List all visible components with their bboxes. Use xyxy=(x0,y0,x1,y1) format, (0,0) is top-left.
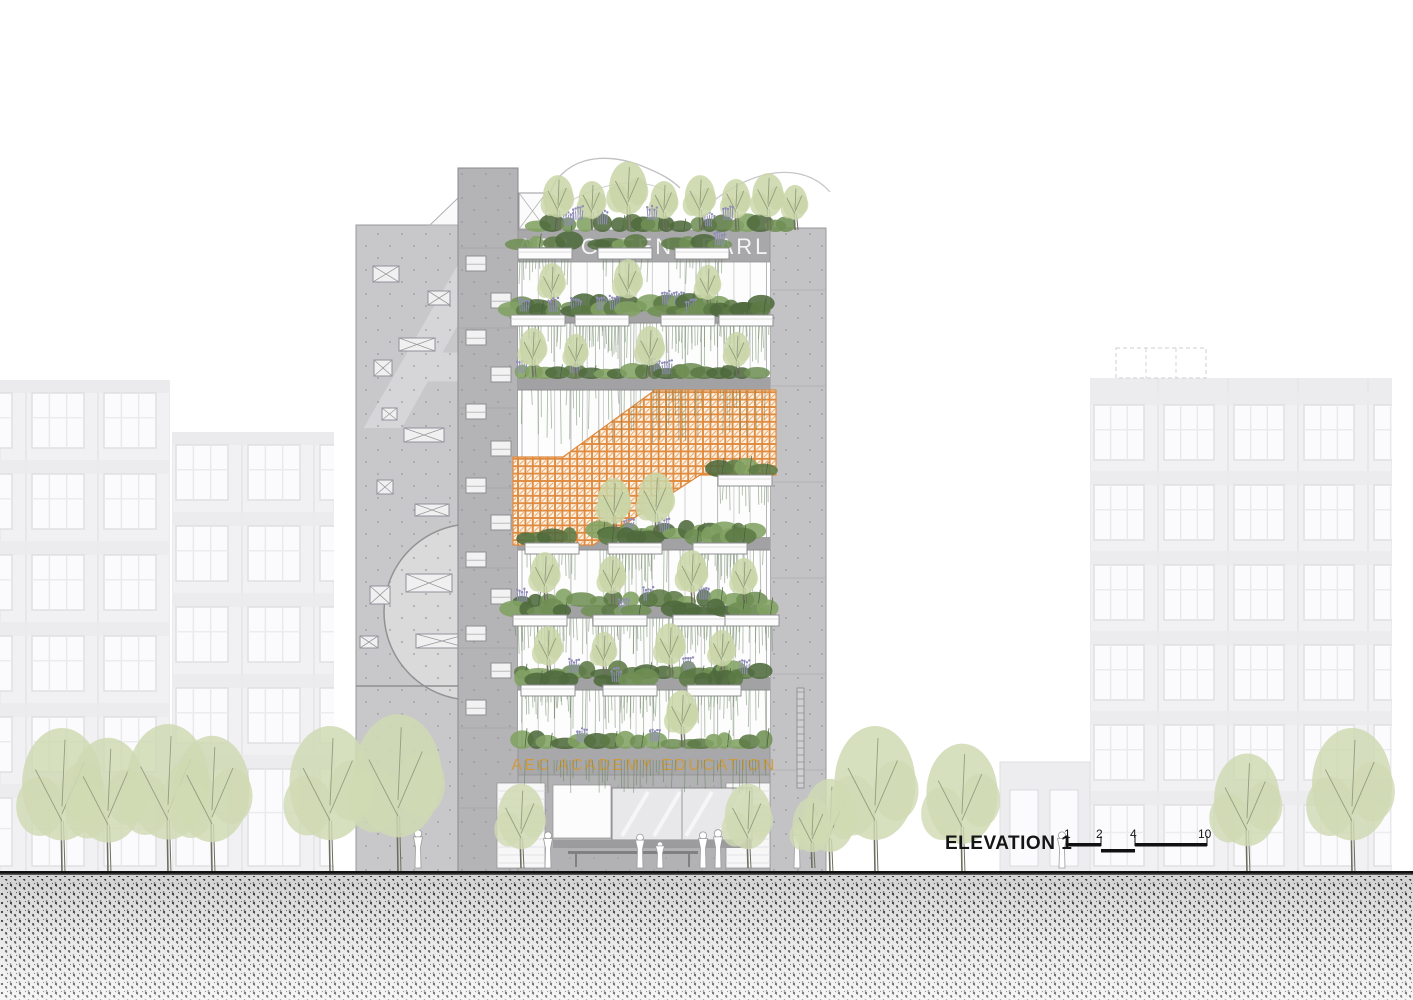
background-window xyxy=(1094,725,1144,780)
background-window xyxy=(0,798,12,866)
background-window xyxy=(1164,565,1214,620)
hanging-planter xyxy=(673,615,727,626)
facade-ladder xyxy=(797,688,804,788)
background-window xyxy=(1374,565,1413,620)
background-window xyxy=(0,717,12,772)
background-window xyxy=(176,607,228,662)
hanging-planter xyxy=(725,615,779,626)
hanging-planter xyxy=(511,315,565,326)
background-window xyxy=(104,393,156,448)
background-window xyxy=(104,636,156,691)
hanging-planter xyxy=(675,248,729,259)
entrance-sign-panel xyxy=(553,785,611,838)
background-window xyxy=(32,474,84,529)
background-window xyxy=(1304,645,1354,700)
hanging-planter xyxy=(575,315,629,326)
background-window xyxy=(104,474,156,529)
background-window xyxy=(1374,405,1413,460)
ground-line xyxy=(0,871,1413,874)
hanging-planter xyxy=(521,685,575,696)
background-window xyxy=(176,526,228,581)
background-window xyxy=(1304,565,1354,620)
background-window xyxy=(1094,405,1144,460)
background-window xyxy=(0,636,12,691)
core-window xyxy=(491,441,511,456)
background-window xyxy=(248,526,300,581)
background-window xyxy=(1304,405,1354,460)
background-window xyxy=(1164,485,1214,540)
background-window xyxy=(248,607,300,662)
background-window xyxy=(248,445,300,500)
hanging-planter xyxy=(719,315,773,326)
background-window xyxy=(1304,485,1354,540)
background-window xyxy=(1094,645,1144,700)
elevation-drawing: A AEC GREEN PEARL AEC ACADEMY EDUCATION … xyxy=(0,0,1413,1000)
background-window xyxy=(1234,405,1284,460)
background-window xyxy=(1374,645,1413,700)
hanging-planter xyxy=(603,685,657,696)
elevation-sheet: A AEC GREEN PEARL AEC ACADEMY EDUCATION … xyxy=(0,0,1413,1000)
background-window xyxy=(1164,405,1214,460)
core-window xyxy=(466,552,486,567)
background-window xyxy=(32,636,84,691)
hanging-planter xyxy=(608,543,662,554)
scale-tick-4: 4 xyxy=(1130,827,1137,841)
background-window xyxy=(0,393,12,448)
core-window xyxy=(466,478,486,493)
hanging-planter xyxy=(513,615,567,626)
hanging-planter xyxy=(718,475,772,486)
background-window xyxy=(1094,485,1144,540)
hanging-planter xyxy=(687,685,741,696)
background-window xyxy=(32,393,84,448)
core-window xyxy=(466,404,486,419)
core-window xyxy=(491,663,511,678)
background-window xyxy=(1374,485,1413,540)
hanging-planter xyxy=(525,543,579,554)
core-window xyxy=(466,256,486,271)
floor-slab xyxy=(518,377,770,390)
hanging-planter xyxy=(693,543,747,554)
core-window xyxy=(491,367,511,382)
bench xyxy=(568,851,698,854)
hanging-planter xyxy=(593,615,647,626)
scale-segment xyxy=(1068,843,1101,847)
hanging-planter xyxy=(598,248,652,259)
background-window xyxy=(1164,645,1214,700)
background-window xyxy=(1234,565,1284,620)
core-window xyxy=(491,515,511,530)
scale-segment xyxy=(1101,849,1135,853)
background-window xyxy=(1094,565,1144,620)
background-window xyxy=(0,474,12,529)
scale-tick-2: 2 xyxy=(1096,827,1103,841)
background-window xyxy=(176,445,228,500)
background-window xyxy=(1234,645,1284,700)
scale-tick-10: 10 xyxy=(1198,827,1212,841)
core-window xyxy=(466,626,486,641)
background-window xyxy=(104,555,156,610)
roof-wedge xyxy=(430,198,458,225)
core-window xyxy=(466,700,486,715)
elevation-label: ELEVATION 1 xyxy=(945,833,1072,854)
background-window xyxy=(1234,485,1284,540)
ground-hatch xyxy=(0,871,1413,1000)
tree xyxy=(829,726,919,873)
core-window xyxy=(466,330,486,345)
background-window xyxy=(32,555,84,610)
background-window xyxy=(248,688,300,743)
hanging-planter xyxy=(518,248,572,259)
rooftop-structure-outline xyxy=(1116,348,1206,378)
hanging-planter xyxy=(661,315,715,326)
scale-segment xyxy=(1135,843,1207,847)
background-window xyxy=(0,555,12,610)
background-window xyxy=(1164,725,1214,780)
